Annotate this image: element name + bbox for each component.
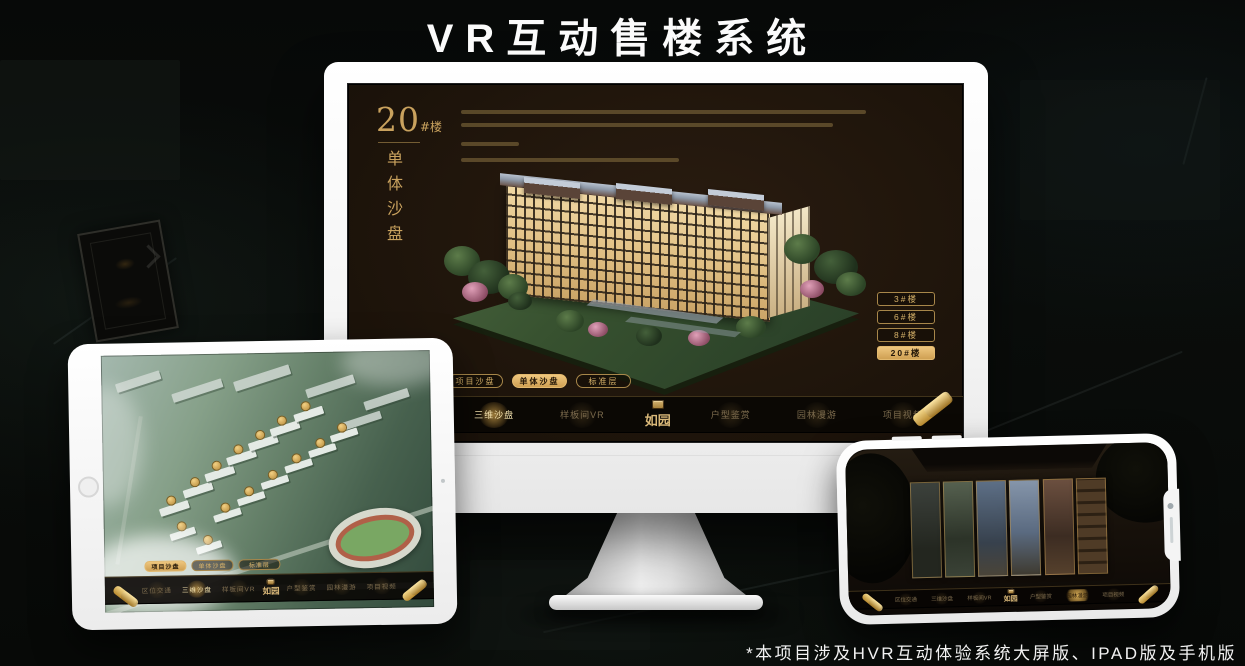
description-line <box>461 123 833 127</box>
nav-item-garden-tour[interactable]: 园林漫游 <box>791 405 843 424</box>
building-badge[interactable] <box>256 431 264 439</box>
floor-button-3[interactable]: 3#楼 <box>877 292 935 306</box>
tablet-screen: 项目沙盘 单体沙盘 标准层 区位交通 三维沙盘 样板间VR 如园 户型鉴赏 园林… <box>101 350 434 613</box>
stage: VR互动售楼系统 20#楼 单体沙盘 <box>0 0 1245 666</box>
cloud <box>101 385 144 506</box>
building-title-number: 20 <box>376 100 420 139</box>
tab-single-sandtable[interactable]: 单体沙盘 <box>512 374 567 388</box>
volume-button[interactable] <box>892 436 922 441</box>
bg-map-block <box>0 60 180 180</box>
bg-road-line <box>987 351 1182 432</box>
page-title: VR互动售楼系统 <box>0 6 1245 64</box>
tree <box>508 292 532 310</box>
phone-frame: 区位交通 三维沙盘 样板间VR 如园 户型鉴赏 园林漫游 项目视频 <box>836 433 1180 625</box>
bg-plaque-inner <box>90 232 166 329</box>
notch <box>1163 489 1181 561</box>
speaker-slot <box>1170 517 1174 543</box>
building-title-suffix: #楼 <box>420 120 442 134</box>
nav-item-showroom-vr[interactable]: 样板间VR <box>219 581 259 596</box>
building-badge[interactable] <box>234 445 242 453</box>
foliage-silhouette <box>845 452 918 584</box>
building-render[interactable] <box>440 142 872 394</box>
gallery-panel[interactable] <box>943 481 975 578</box>
front-camera-icon <box>1167 503 1173 509</box>
aerial-building <box>305 374 355 398</box>
tab-standard-floor[interactable]: 标准层 <box>238 559 280 571</box>
brand-logo: 如园 <box>262 579 279 597</box>
flower-bush <box>800 280 824 298</box>
brand-logo: 如园 <box>1004 589 1018 604</box>
building-badge[interactable] <box>269 471 277 479</box>
nav-item-3d-sandtable[interactable]: 三维沙盘 <box>468 405 520 424</box>
phone-nav-bar: 区位交通 三维沙盘 样板间VR 如园 户型鉴赏 园林漫游 项目视频 <box>848 583 1170 610</box>
phone-screen: 区位交通 三维沙盘 样板间VR 如园 户型鉴赏 园林漫游 项目视频 <box>845 442 1171 616</box>
tab-project-sandtable[interactable]: 项目沙盘 <box>448 374 503 388</box>
tablet-frame: 项目沙盘 单体沙盘 标准层 区位交通 三维沙盘 样板间VR 如园 户型鉴赏 园林… <box>68 338 458 631</box>
tree <box>636 326 662 346</box>
building-subtitle-vertical: 单体沙盘 <box>381 150 405 250</box>
nav-item-project-video[interactable]: 项目视频 <box>1100 589 1126 600</box>
nav-item-floorplans[interactable]: 户型鉴赏 <box>705 405 757 424</box>
volume-button[interactable] <box>932 435 962 440</box>
nav-item-floorplans[interactable]: 户型鉴赏 <box>1028 590 1054 601</box>
nav-item-project-video[interactable]: 项目视频 <box>364 579 400 594</box>
building-badge[interactable] <box>191 478 199 486</box>
aerial-building <box>233 364 291 391</box>
nav-item-garden-tour[interactable]: 园林漫游 <box>324 579 360 594</box>
title-divider <box>378 142 420 143</box>
brand-logo-text: 如园 <box>1004 594 1018 604</box>
aerial-building <box>115 370 162 393</box>
tablet-nav-bar: 区位交通 三维沙盘 样板间VR 如园 户型鉴赏 园林漫游 项目视频 <box>105 571 434 605</box>
brand-logo: 如园 <box>645 400 671 429</box>
nav-item-location[interactable]: 区位交通 <box>893 594 919 605</box>
nav-item-showroom-vr[interactable]: 样板间VR <box>965 592 993 603</box>
nav-item-showroom-vr[interactable]: 样板间VR <box>554 405 611 424</box>
nav-item-3d-sandtable[interactable]: 三维沙盘 <box>929 593 955 604</box>
tablet-mode-tabs: 项目沙盘 单体沙盘 标准层 <box>144 559 280 572</box>
building-badge[interactable] <box>178 522 186 530</box>
nav-items: 区位交通 三维沙盘 样板间VR 如园 户型鉴赏 园林漫游 项目视频 <box>105 576 434 600</box>
flower-bush <box>462 282 488 302</box>
building-badge[interactable] <box>221 504 229 512</box>
gallery-panel[interactable] <box>1009 479 1041 576</box>
bg-plaque <box>77 220 179 343</box>
tab-standard-floor[interactable]: 标准层 <box>576 374 631 388</box>
nav-items: 区位交通 三维沙盘 样板间VR 如园 户型鉴赏 园林漫游 项目视频 <box>849 585 1171 608</box>
gallery-panel[interactable] <box>1043 478 1075 575</box>
stadium <box>323 499 428 577</box>
pergola-silhouette <box>911 444 1108 473</box>
nav-item-location[interactable]: 区位交通 <box>139 583 175 598</box>
aerial-building <box>171 378 223 403</box>
seal-icon <box>652 400 664 409</box>
footnote-text: *本项目涉及HVR互动体验系统大屏版、IPAD版及手机版 <box>746 639 1237 664</box>
stadium-track <box>331 508 419 569</box>
floor-button-6[interactable]: 6#楼 <box>877 310 935 324</box>
tab-single-sandtable[interactable]: 单体沙盘 <box>191 560 233 572</box>
nav-item-garden-tour[interactable]: 园林漫游 <box>1064 590 1090 601</box>
building-badge[interactable] <box>338 424 346 432</box>
home-button[interactable] <box>78 476 99 497</box>
description-line <box>461 110 866 114</box>
tree <box>836 272 866 296</box>
mode-tabs: 项目沙盘 单体沙盘 标准层 <box>448 374 631 388</box>
tree <box>556 310 584 332</box>
gallery-panel[interactable] <box>976 480 1008 577</box>
gallery-panel[interactable] <box>1076 478 1108 575</box>
bg-map-block <box>1020 80 1220 220</box>
floor-button-20[interactable]: 20#楼 <box>877 346 935 360</box>
gallery-panel[interactable] <box>910 482 942 579</box>
floor-button-8[interactable]: 8#楼 <box>877 328 935 342</box>
monitor-stand <box>561 511 751 599</box>
building-title: 20#楼 <box>376 100 442 139</box>
brand-logo-text: 如园 <box>262 585 279 597</box>
flower-bush <box>588 322 608 337</box>
brand-logo-text: 如园 <box>645 410 671 429</box>
tab-project-sandtable[interactable]: 项目沙盘 <box>144 560 186 572</box>
tree <box>784 234 820 264</box>
aerial-building <box>363 388 410 411</box>
monitor-base <box>549 595 763 610</box>
nav-item-floorplans[interactable]: 户型鉴赏 <box>283 580 319 595</box>
tree <box>736 316 766 338</box>
nav-item-3d-sandtable[interactable]: 三维沙盘 <box>179 582 215 597</box>
camera-icon <box>441 479 445 483</box>
